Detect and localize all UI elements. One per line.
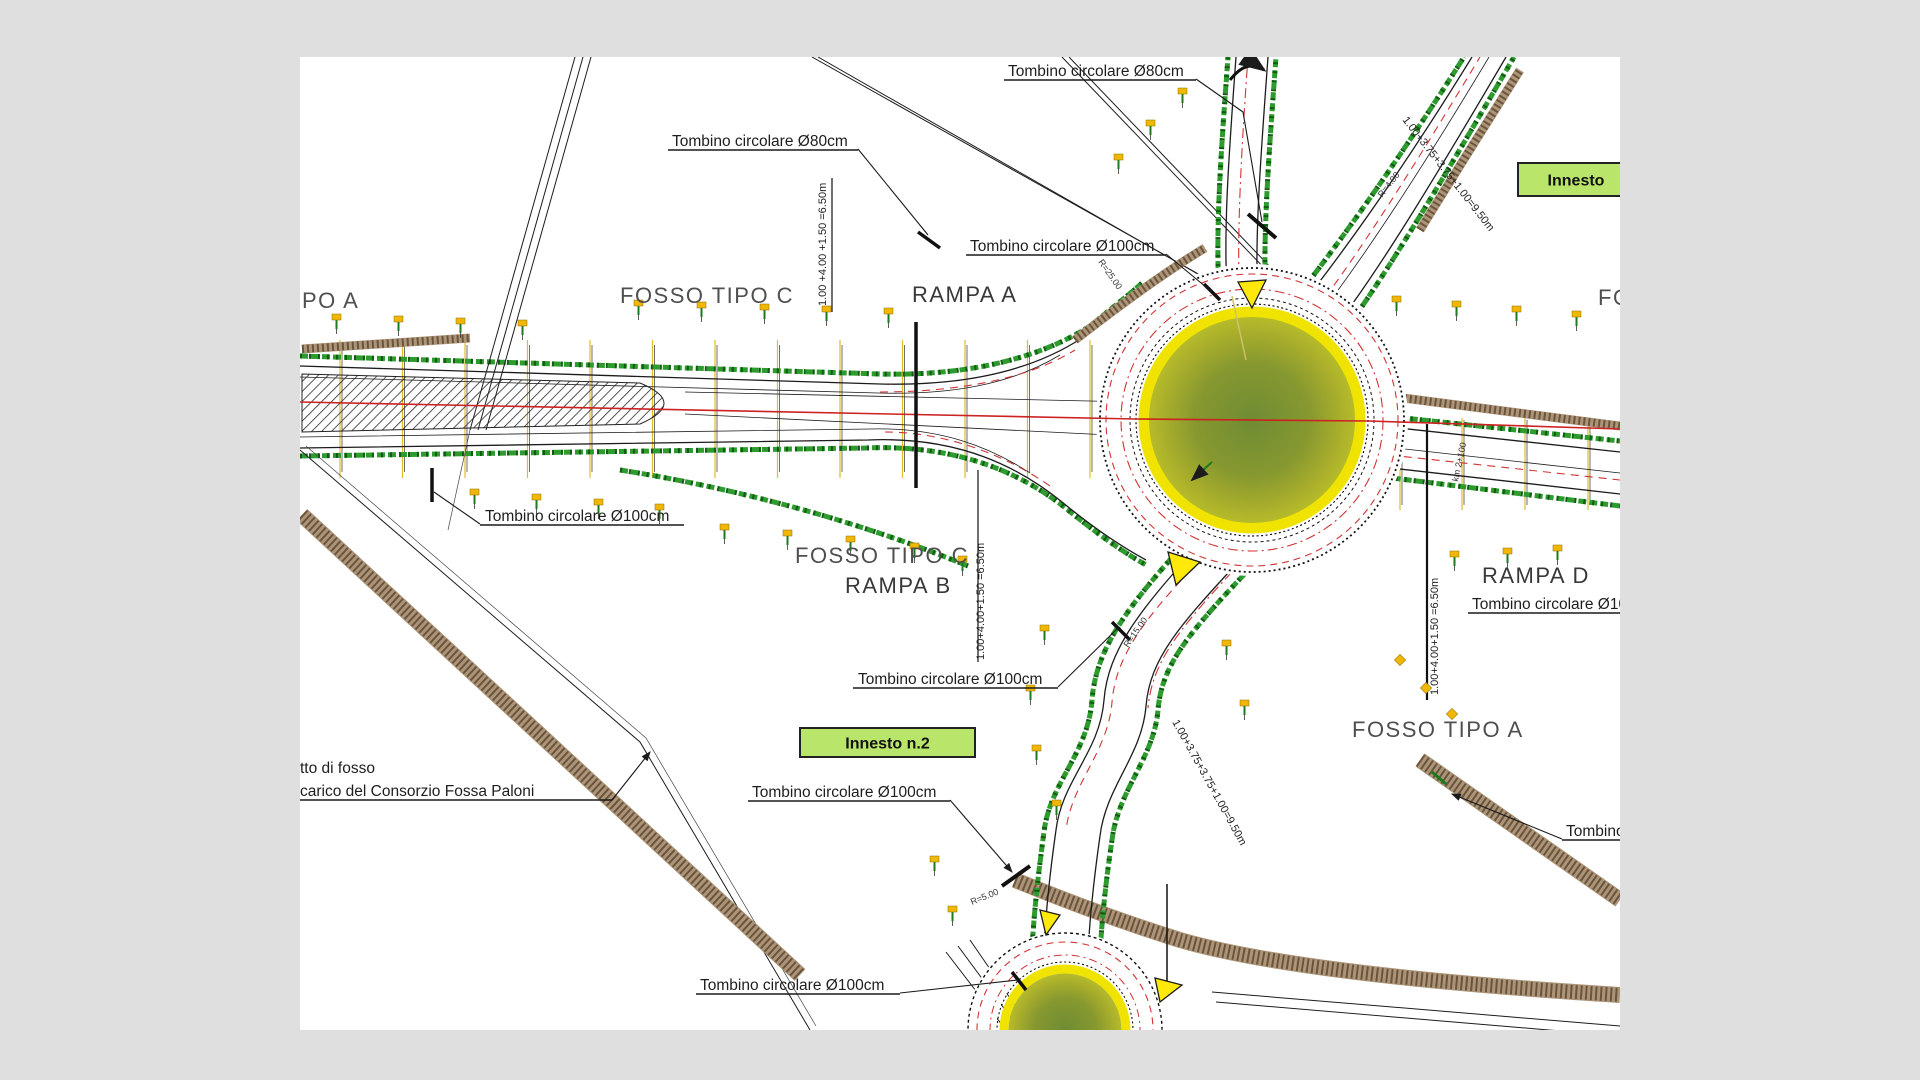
screen: { "drawing_title": "Planimetria rotatori… — [0, 0, 1920, 1080]
dimension-label: 1.00 +4.00 +1.50 =6.50m — [817, 183, 829, 306]
callout-label: Tombino circolare Ø100cm — [858, 671, 1042, 688]
area-label: RAMPA D — [1482, 563, 1590, 588]
area-label: FO — [1598, 285, 1632, 310]
callout-label: Tombino circolare Ø100cm — [700, 977, 884, 994]
innesto-box-label: Innesto — [1548, 173, 1605, 190]
callout-label: Tombino circolare Ø100cm — [970, 238, 1154, 255]
cad-plan-drawing: PO AFOSSO TIPO CRAMPA AFOSSO TIPO CRAMPA… — [0, 0, 1920, 1080]
innesto-box-label: Innesto n.2 — [845, 736, 930, 753]
area-label: FOSSO TIPO A — [1352, 717, 1524, 742]
callout-label: Tombino circolare Ø100cm — [752, 784, 936, 801]
dimension-label: 1.00+4.00+1.50 =6.50m — [975, 543, 987, 660]
area-label: FOSSO TIPO C — [620, 283, 794, 308]
area-label: RAMPA A — [912, 282, 1017, 307]
note-line2: carico del Consorzio Fossa Paloni — [300, 783, 534, 800]
dimension-label: 1.00+4.00+1.50 =6.50m — [1429, 578, 1441, 695]
area-label: RAMPA B — [845, 573, 952, 598]
area-label: FOSSO TIPO C — [795, 543, 969, 568]
callout-label: Tombino circolare Ø100cm — [1566, 823, 1750, 840]
note-line1: tto di fosso — [300, 760, 375, 777]
area-label: PO A — [302, 288, 359, 313]
innesto-box: Innesto — [1518, 163, 1634, 196]
callout-label: Tombino circolare Ø80cm — [1008, 63, 1184, 80]
callout-label: Tombino circolare Ø80cm — [672, 133, 848, 150]
callout-label: Tombino circolare Ø100cm — [485, 508, 669, 525]
innesto-box: Innesto n.2 — [800, 728, 975, 757]
callout-label: Tombino circolare Ø100cm — [1472, 596, 1656, 613]
